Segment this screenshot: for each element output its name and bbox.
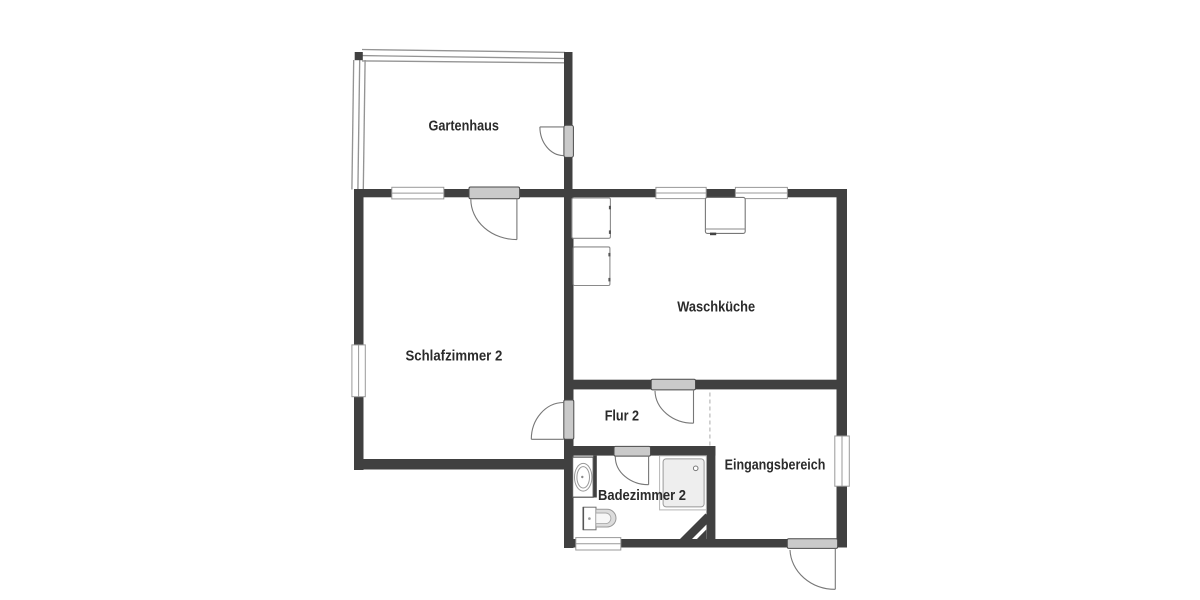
svg-text:Badezimmer 2: Badezimmer 2 — [598, 488, 686, 504]
svg-text:Waschküche: Waschküche — [677, 299, 755, 315]
svg-text:Gartenhaus: Gartenhaus — [429, 118, 499, 134]
svg-text:Schlafzimmer 2: Schlafzimmer 2 — [405, 348, 502, 364]
svg-text:Eingangsbereich: Eingangsbereich — [725, 458, 826, 474]
svg-text:Flur 2: Flur 2 — [605, 409, 639, 425]
